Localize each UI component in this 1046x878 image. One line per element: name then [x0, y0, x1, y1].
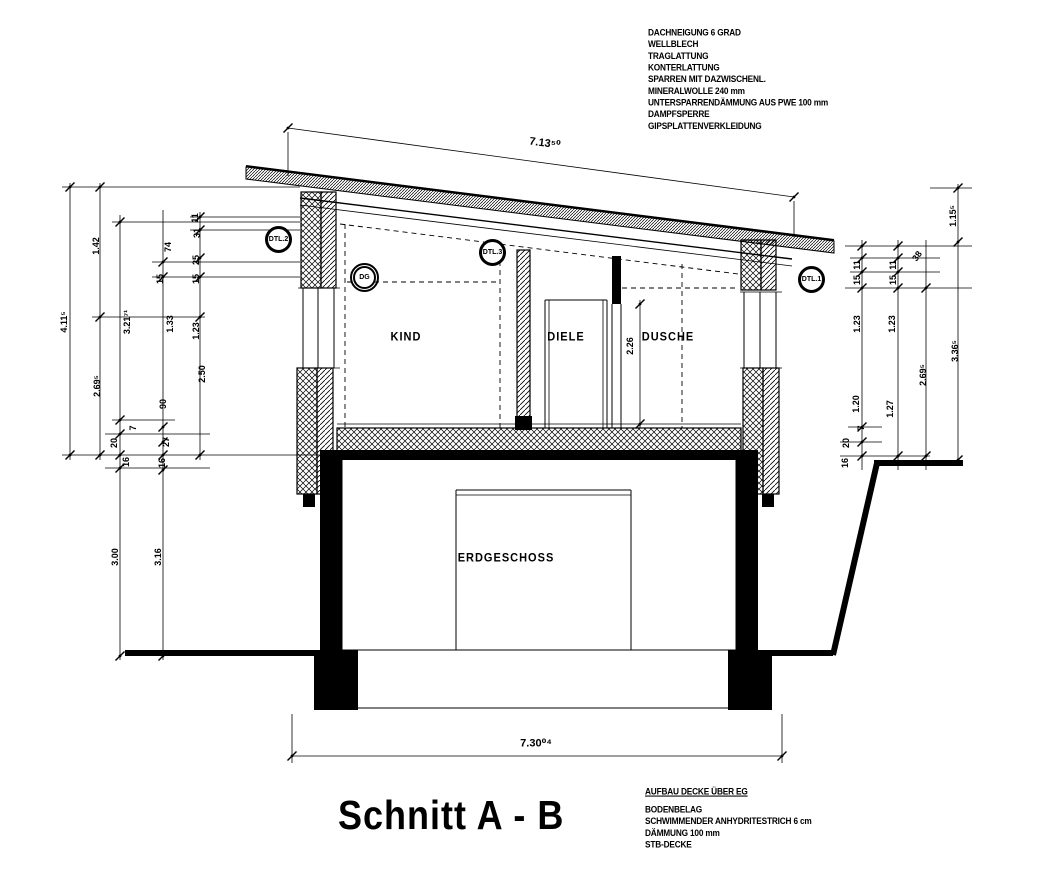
detail-marker-dtl1: DTL.1: [798, 266, 825, 293]
room-label-erdgeschoss: ERDGESCHOSS: [458, 551, 555, 564]
dim-label: 16: [840, 458, 850, 468]
roof-spec-line: DAMPFSPERRE: [648, 109, 828, 121]
foundation-terrain: [125, 463, 963, 710]
dim-label: 1.20: [851, 395, 861, 413]
dim-label: 27: [161, 437, 171, 447]
room-label-diele: DIELE: [547, 330, 584, 343]
roof-spec-line: KONTERLATTUNG: [648, 62, 828, 74]
dim-label: 11: [190, 213, 200, 223]
roof-construction-notes: DACHNEIGUNG 6 GRAD WELLBLECH TRAGLATTUNG…: [648, 27, 828, 132]
dim-label: 15: [888, 275, 898, 285]
dim-label: 3.21⁷¹: [122, 310, 132, 334]
roof-spec-line: WELLBLECH: [648, 39, 828, 51]
dim-label: 90: [158, 399, 168, 409]
floor-spec-line: SCHWIMMENDER ANHYDRITESTRICH 6 cm: [645, 816, 812, 828]
dim-label: 1.33: [165, 315, 175, 333]
dim-label: 11: [852, 260, 862, 270]
dim-label: 1.23: [191, 322, 201, 340]
dim-label: 3.36⁵: [950, 340, 960, 362]
dim-label: 15: [155, 274, 165, 284]
detail-marker-dtl2: DTL.2: [265, 226, 292, 253]
detail-marker-dg: DG: [353, 266, 376, 289]
dim-label: 3.00: [110, 548, 120, 566]
room-label-kind: KIND: [391, 330, 422, 343]
dim-label: 16: [157, 458, 167, 468]
dim-label: 11: [888, 260, 898, 270]
dim-label: 15: [191, 274, 201, 284]
dim-label: 1.42: [91, 237, 101, 255]
dim-label: 7: [856, 425, 866, 430]
room-label-dusche: DUSCHE: [642, 330, 694, 343]
dim-label: 2.50: [197, 365, 207, 383]
dim-label: 74: [163, 242, 173, 252]
dim-label: 31: [192, 228, 202, 238]
detail-marker-dtl3: DTL.3: [479, 239, 506, 266]
dim-label: 7: [128, 425, 138, 430]
dim-label: 4.11⁵: [59, 311, 69, 332]
roof-spec-line: SPARREN MIT DAZWISCHENL.: [648, 74, 828, 86]
roof-spec-line: MINERALWOLLE 240 mm: [648, 85, 828, 97]
dim-label: 2.69⁵: [918, 364, 928, 386]
floor-spec-line: STB-DECKE: [645, 839, 812, 851]
dim-label: 25: [191, 255, 201, 265]
dim-label: 20: [109, 438, 119, 448]
floor-spec-title: AUFBAU DECKE ÜBER EG: [645, 786, 812, 798]
roof-spec-line: UNTERSPARRENDÄMMUNG AUS PWE 100 mm: [648, 97, 828, 109]
dim-label: 16: [121, 457, 131, 467]
floor-spec-line: DÄMMUNG 100 mm: [645, 827, 812, 839]
roof-spec-line: DACHNEIGUNG 6 GRAD: [648, 27, 828, 39]
dim-label: 1.23: [852, 315, 862, 333]
dim-label: 1.15⁵: [948, 205, 958, 227]
floor-construction-notes: AUFBAU DECKE ÜBER EG BODENBELAG SCHWIMME…: [645, 786, 812, 851]
dashed-lines: [340, 224, 738, 428]
sheet-title: Schnitt A - B: [338, 792, 564, 839]
dim-bottom-total: 7.30⁰⁴: [520, 737, 552, 750]
dim-label: 1.23: [887, 315, 897, 333]
dim-label: 3.16: [153, 548, 163, 566]
roof-spec-line: GIPSPLATTENVERKLEIDUNG: [648, 120, 828, 132]
roof-spec-line: TRAGLATTUNG: [648, 50, 828, 62]
dim-label: 1.27: [885, 400, 895, 418]
dim-label: 20: [841, 438, 851, 448]
dim-label: 15: [852, 275, 862, 285]
dim-label: 2.26: [625, 337, 635, 355]
dim-label: 2.69⁵: [92, 375, 102, 397]
drawing-sheet: DACHNEIGUNG 6 GRAD WELLBLECH TRAGLATTUNG…: [0, 0, 1046, 878]
attic-floor-slab: [337, 424, 741, 452]
floor-spec-line: BODENBELAG: [645, 804, 812, 816]
